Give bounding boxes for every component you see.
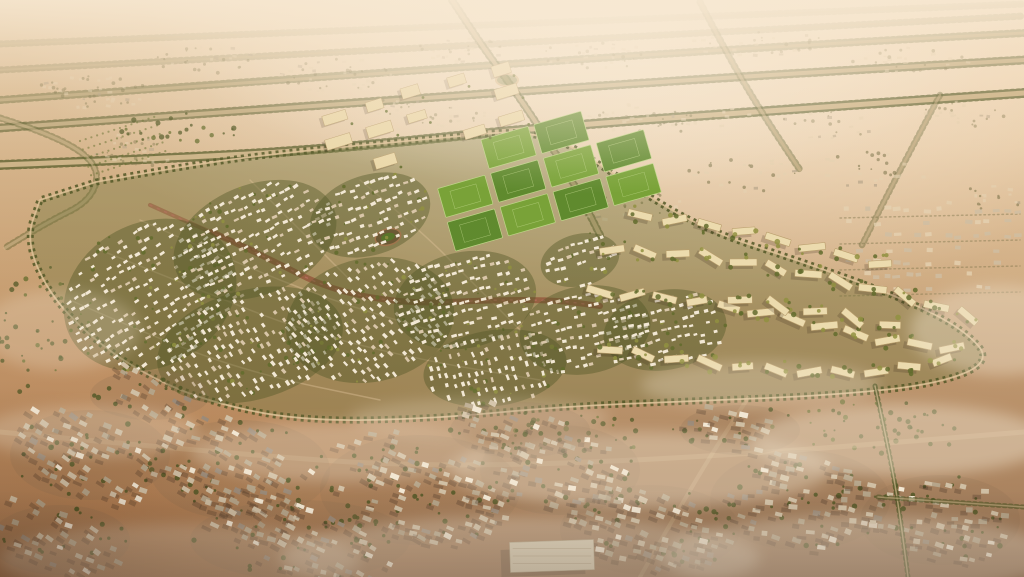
- aerial-masterplan-render: [0, 0, 1024, 577]
- scene-canvas: [0, 0, 1024, 577]
